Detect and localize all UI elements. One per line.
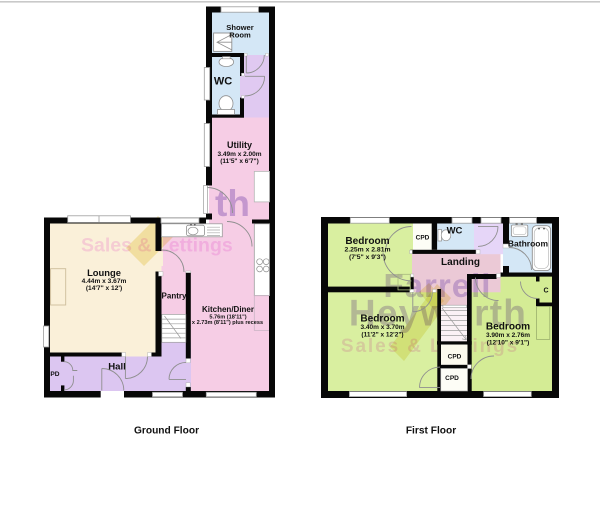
svg-text:Lounge: Lounge — [87, 267, 121, 278]
svg-text:3.49m x 2.00m: 3.49m x 2.00m — [217, 151, 261, 158]
svg-text:Ground Floor: Ground Floor — [134, 426, 199, 437]
svg-text:(7'5" x 9'3"): (7'5" x 9'3") — [349, 254, 386, 261]
svg-text:Landing: Landing — [441, 257, 480, 268]
svg-text:Room: Room — [229, 30, 251, 39]
svg-text:(14'7" x 12'): (14'7" x 12') — [86, 285, 122, 292]
svg-text:WC: WC — [447, 226, 463, 237]
svg-text:3.40m x 3.70m: 3.40m x 3.70m — [360, 324, 404, 331]
svg-text:(11'2" x 12'2"): (11'2" x 12'2") — [361, 331, 403, 338]
svg-text:CPD: CPD — [448, 354, 462, 361]
svg-text:Pantry: Pantry — [162, 292, 187, 301]
svg-text:Hall: Hall — [108, 362, 126, 373]
svg-text:Bedroom: Bedroom — [360, 313, 404, 324]
svg-text:(12'10" x 9'1"): (12'10" x 9'1") — [487, 340, 530, 347]
svg-text:Utility: Utility — [227, 140, 252, 150]
svg-text:x 2.73m (8'11") plus recess: x 2.73m (8'11") plus recess — [192, 320, 263, 326]
svg-text:4.44m x 3.67m: 4.44m x 3.67m — [82, 278, 127, 285]
svg-text:CPD: CPD — [416, 235, 430, 242]
svg-text:First Floor: First Floor — [406, 426, 456, 437]
svg-text:Kitchen/Diner: Kitchen/Diner — [202, 305, 254, 314]
svg-text:WC: WC — [214, 76, 232, 88]
svg-text:(11'5" x 6'7"): (11'5" x 6'7") — [220, 158, 259, 165]
svg-text:3.90m x 2.76m: 3.90m x 2.76m — [486, 332, 530, 339]
svg-text:Bedroom: Bedroom — [486, 322, 530, 333]
svg-text:th: th — [215, 183, 250, 224]
svg-text:2.25m x 2.81m: 2.25m x 2.81m — [344, 247, 390, 254]
svg-text:PD: PD — [50, 371, 59, 378]
svg-text:Bedroom: Bedroom — [345, 236, 389, 247]
svg-text:CPD: CPD — [445, 375, 459, 382]
svg-text:Bathroom: Bathroom — [508, 239, 549, 249]
svg-text:C: C — [543, 287, 548, 294]
